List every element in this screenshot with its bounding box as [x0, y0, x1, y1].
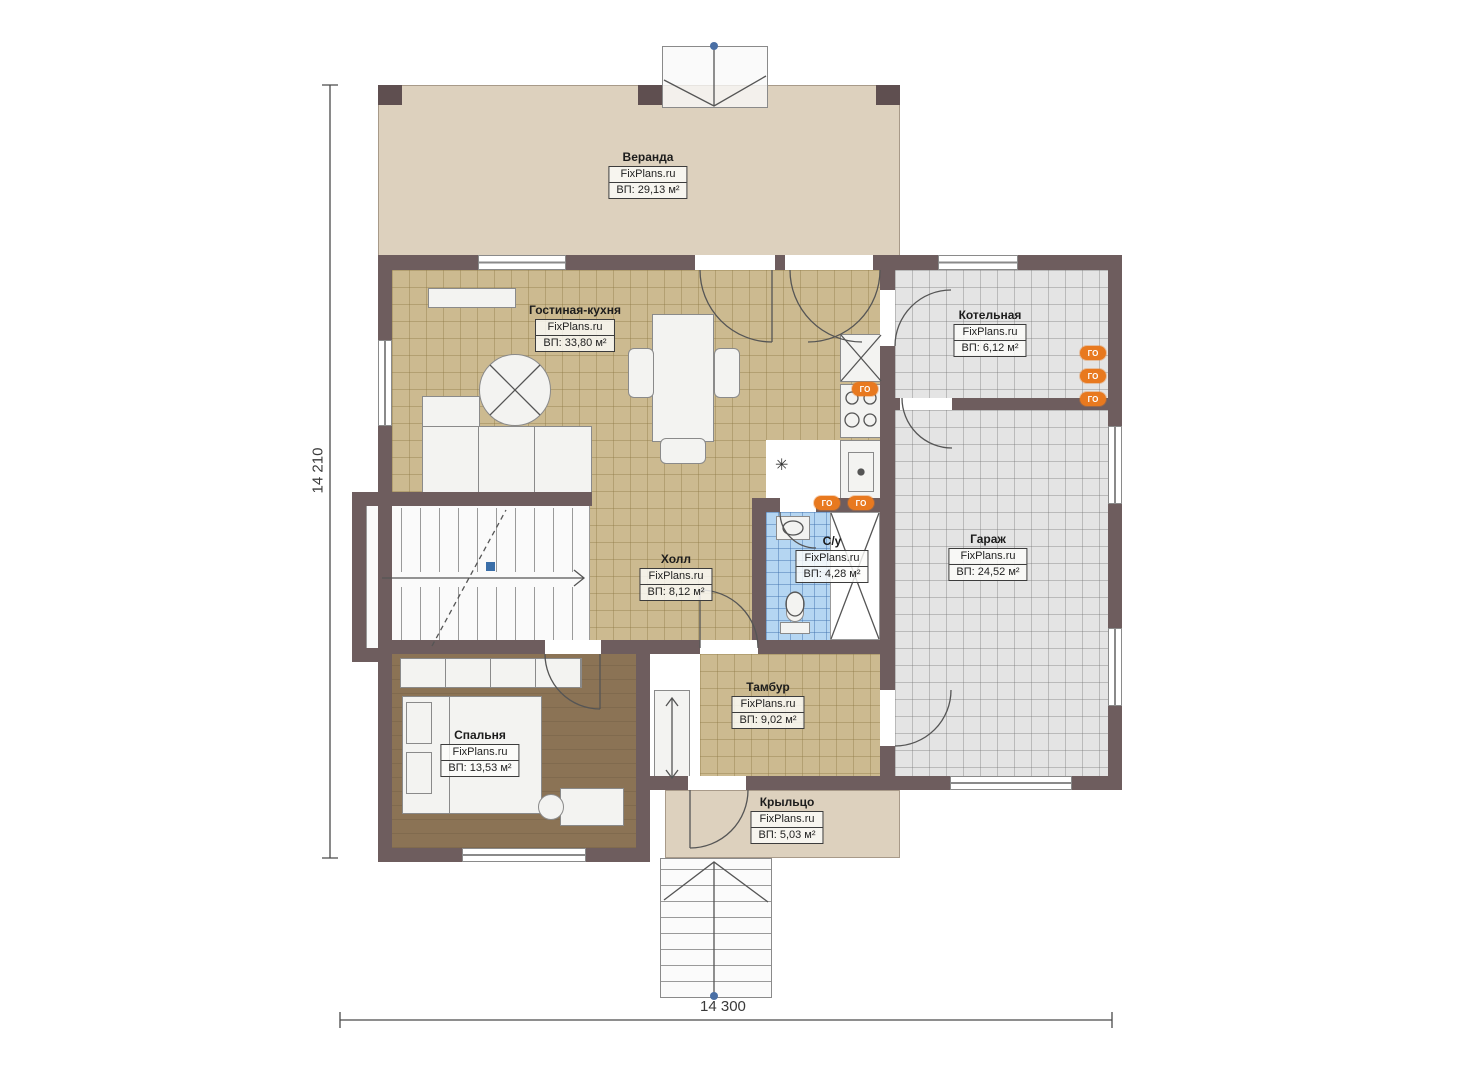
room-label-porch: Крыльцо FixPlans.ru ВП: 5,03 м²	[750, 795, 823, 844]
room-name: Тамбур	[731, 680, 804, 694]
wall	[650, 640, 880, 654]
wall	[352, 492, 366, 662]
toilet	[786, 592, 804, 622]
brand-watermark: FixPlans.ru	[609, 167, 686, 183]
room-name: Веранда	[608, 150, 687, 164]
room-label-hall: Холл FixPlans.ru ВП: 8,12 м²	[639, 552, 712, 601]
wall	[1108, 255, 1122, 790]
wall	[752, 498, 766, 640]
freezer-icon: ✳	[775, 455, 788, 475]
stairs-marker-icon	[486, 562, 495, 571]
dining-table	[652, 314, 714, 442]
utility-icon: ГО	[848, 496, 874, 510]
window	[1108, 426, 1122, 504]
room-info-box: FixPlans.ru ВП: 4,28 м²	[795, 550, 868, 583]
desk	[560, 788, 624, 826]
room-info-box: FixPlans.ru ВП: 6,12 м²	[953, 324, 1026, 357]
garage-floor	[895, 410, 1108, 776]
utility-icon-label: ГО	[1088, 395, 1099, 404]
wardrobe	[400, 658, 582, 688]
toilet-tank	[780, 622, 810, 634]
door-opening	[545, 640, 601, 654]
utility-icon: ГО	[814, 496, 840, 510]
brand-watermark: FixPlans.ru	[751, 812, 822, 828]
utility-icon-label: ГО	[1088, 349, 1099, 358]
utility-icon-label: ГО	[860, 385, 871, 394]
room-info-box: FixPlans.ru ВП: 24,52 м²	[948, 548, 1027, 581]
window	[938, 255, 1018, 270]
room-info-box: FixPlans.ru ВП: 5,03 м²	[750, 811, 823, 844]
dimension-width: 14 300	[700, 998, 746, 1015]
utility-icon-label: ГО	[856, 499, 867, 508]
room-name: С/у	[795, 534, 868, 548]
veranda-pillar	[638, 85, 662, 105]
room-label-veranda: Веранда FixPlans.ru ВП: 29,13 м²	[608, 150, 687, 199]
veranda-pillar	[876, 85, 900, 105]
sofa	[422, 426, 592, 494]
room-label-bedroom: Спальня FixPlans.ru ВП: 13,53 м²	[440, 728, 519, 777]
window	[1108, 628, 1122, 706]
brand-watermark: FixPlans.ru	[536, 320, 613, 336]
front-door-opening	[688, 776, 746, 790]
window	[462, 848, 586, 862]
window	[378, 340, 392, 426]
room-label-bathroom: С/у FixPlans.ru ВП: 4,28 м²	[795, 534, 868, 583]
wall	[650, 776, 880, 790]
room-area: ВП: 33,80 м²	[536, 336, 613, 351]
room-name: Гостиная-кухня	[529, 303, 621, 317]
door-opening	[880, 690, 895, 746]
room-info-box: FixPlans.ru ВП: 33,80 м²	[535, 319, 614, 352]
utility-icon: ГО	[1080, 369, 1106, 383]
dining-chair	[660, 438, 706, 464]
door-opening	[700, 640, 758, 654]
kitchen-sink	[848, 452, 874, 492]
door-opening	[900, 398, 952, 410]
wall	[636, 654, 650, 862]
utility-icon: ГО	[1080, 392, 1106, 406]
room-area: ВП: 4,28 м²	[796, 567, 867, 582]
desk-chair	[538, 794, 564, 820]
stairs	[366, 505, 590, 650]
stairs-upper-flight	[401, 508, 589, 572]
veranda-steps	[662, 46, 768, 108]
door-opening	[785, 255, 873, 270]
utility-icon: ГО	[1080, 346, 1106, 360]
room-name: Котельная	[953, 308, 1026, 322]
room-name: Крыльцо	[750, 795, 823, 809]
room-area: ВП: 9,02 м²	[732, 713, 803, 728]
brand-watermark: FixPlans.ru	[640, 569, 711, 585]
door-opening	[695, 255, 775, 270]
door-opening	[880, 290, 895, 346]
brand-watermark: FixPlans.ru	[441, 745, 518, 761]
dining-chair	[714, 348, 740, 398]
room-label-garage: Гараж FixPlans.ru ВП: 24,52 м²	[948, 532, 1027, 581]
corridor-shelf	[654, 690, 690, 786]
room-label-living: Гостиная-кухня FixPlans.ru ВП: 33,80 м²	[529, 303, 621, 352]
room-info-box: FixPlans.ru ВП: 13,53 м²	[440, 744, 519, 777]
wall	[378, 640, 650, 654]
dining-chair	[628, 348, 654, 398]
room-area: ВП: 24,52 м²	[949, 565, 1026, 580]
room-info-box: FixPlans.ru ВП: 29,13 м²	[608, 166, 687, 199]
utility-icon-label: ГО	[822, 499, 833, 508]
pillow	[406, 752, 432, 794]
room-info-box: FixPlans.ru ВП: 9,02 м²	[731, 696, 804, 729]
entry-marker-icon	[710, 992, 718, 1000]
utility-icon-label: ГО	[1088, 372, 1099, 381]
room-name: Гараж	[948, 532, 1027, 546]
room-name: Спальня	[440, 728, 519, 742]
round-table	[479, 354, 551, 426]
brand-watermark: FixPlans.ru	[949, 549, 1026, 565]
entry-marker-icon	[710, 42, 718, 50]
room-area: ВП: 29,13 м²	[609, 183, 686, 198]
pillow	[406, 702, 432, 744]
brand-watermark: FixPlans.ru	[796, 551, 867, 567]
garage-gate	[950, 776, 1072, 790]
room-label-tambur: Тамбур FixPlans.ru ВП: 9,02 м²	[731, 680, 804, 729]
wall	[352, 492, 592, 506]
window	[478, 255, 566, 270]
room-area: ВП: 5,03 м²	[751, 828, 822, 843]
room-area: ВП: 13,53 м²	[441, 761, 518, 776]
wall	[352, 648, 378, 662]
room-label-boiler: Котельная FixPlans.ru ВП: 6,12 м²	[953, 308, 1026, 357]
tv-stand	[428, 288, 516, 308]
room-info-box: FixPlans.ru ВП: 8,12 м²	[639, 568, 712, 601]
utility-icon: ГО	[852, 382, 878, 396]
room-name: Холл	[639, 552, 712, 566]
floor-plan: ✳ ГО ГО ГО ГО ГО ГО	[0, 0, 1474, 1080]
veranda-pillar	[378, 85, 402, 105]
brand-watermark: FixPlans.ru	[954, 325, 1025, 341]
door-opening	[780, 498, 816, 512]
porch-steps	[660, 858, 772, 998]
fridge	[840, 334, 882, 382]
room-area: ВП: 6,12 м²	[954, 341, 1025, 356]
room-area: ВП: 8,12 м²	[640, 585, 711, 600]
dimension-height: 14 210	[309, 448, 326, 494]
brand-watermark: FixPlans.ru	[732, 697, 803, 713]
